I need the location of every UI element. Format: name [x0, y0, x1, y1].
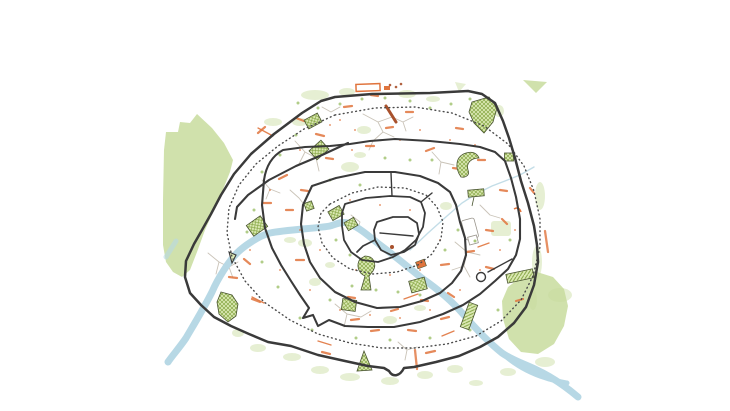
park-tree-east	[468, 189, 485, 197]
landmark-dot	[474, 240, 477, 243]
park-south-a	[341, 299, 356, 312]
park-ne-small	[505, 153, 514, 161]
center-point-marker	[390, 245, 394, 249]
map-background	[0, 0, 730, 411]
poster-page: Ceci n'est pas (tout à fait) Paris	[0, 0, 730, 411]
orange-small-rect	[384, 86, 390, 90]
landmark-rect-small	[468, 235, 479, 245]
paris-map-canvas	[0, 0, 730, 411]
